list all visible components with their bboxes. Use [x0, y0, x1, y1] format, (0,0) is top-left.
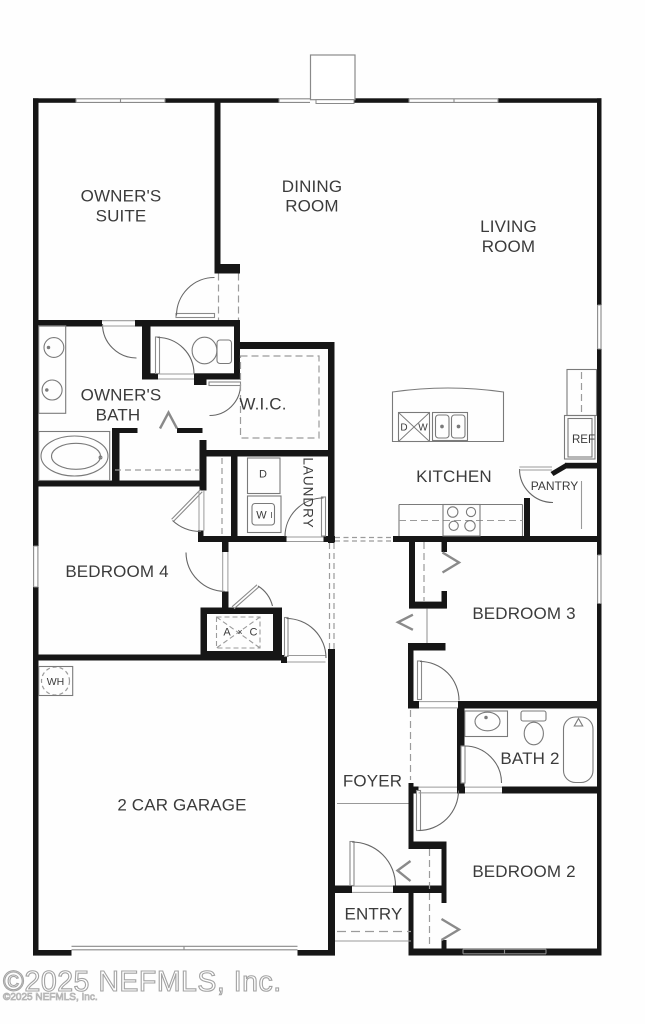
svg-text:BATH: BATH [96, 406, 141, 425]
svg-text:2 CAR GARAGE: 2 CAR GARAGE [117, 796, 246, 815]
svg-text:ROOM: ROOM [482, 237, 535, 256]
svg-text:OWNER'S: OWNER'S [81, 187, 162, 206]
svg-text:DINING: DINING [282, 177, 342, 196]
svg-text:BEDROOM 2: BEDROOM 2 [472, 862, 575, 881]
svg-text:WH: WH [47, 676, 65, 688]
svg-text:D: D [259, 469, 267, 481]
svg-text:BATH 2: BATH 2 [500, 749, 559, 768]
svg-text:PANTRY: PANTRY [531, 479, 579, 493]
svg-text:REF: REF [572, 434, 595, 446]
svg-text:BEDROOM 3: BEDROOM 3 [472, 604, 575, 623]
svg-text:OWNER'S: OWNER'S [81, 386, 162, 405]
svg-text:ENTRY: ENTRY [344, 905, 402, 924]
svg-text:LAUNDRY: LAUNDRY [301, 457, 316, 528]
svg-text:FOYER: FOYER [343, 772, 402, 791]
svg-text:KITCHEN: KITCHEN [416, 467, 492, 486]
svg-text:C: C [250, 627, 258, 639]
svg-text:×: × [237, 627, 242, 637]
svg-text:LIVING: LIVING [480, 217, 537, 236]
svg-text:W: W [256, 510, 267, 522]
svg-text:W.I.C.: W.I.C. [239, 395, 286, 414]
svg-text:ROOM: ROOM [285, 197, 338, 216]
svg-text:W: W [418, 423, 428, 434]
svg-text:A: A [223, 627, 231, 639]
svg-text:BEDROOM 4: BEDROOM 4 [65, 562, 168, 581]
svg-text:I: I [270, 511, 272, 520]
svg-text:©2025 NEFMLS, Inc.: ©2025 NEFMLS, Inc. [3, 992, 98, 1003]
svg-text:D: D [400, 423, 407, 434]
svg-text:SUITE: SUITE [96, 207, 147, 226]
